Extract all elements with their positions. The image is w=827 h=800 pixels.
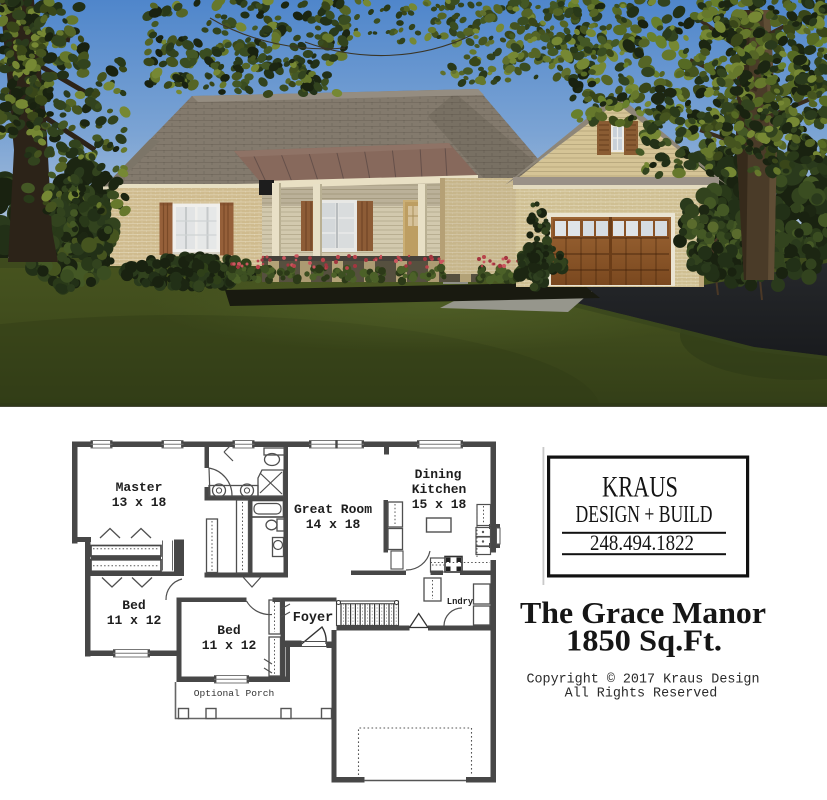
svg-text:Optional Porch: Optional Porch <box>194 688 275 699</box>
svg-text:Bed: Bed <box>122 598 145 613</box>
svg-text:All Rights Reserved: All Rights Reserved <box>565 687 718 702</box>
svg-text:14 x 18: 14 x 18 <box>306 517 361 532</box>
svg-text:Master: Master <box>116 480 163 495</box>
svg-text:Dining: Dining <box>415 467 462 482</box>
svg-text:Bed: Bed <box>217 623 240 638</box>
svg-text:13 x 18: 13 x 18 <box>112 495 167 510</box>
svg-text:Great Room: Great Room <box>294 502 372 517</box>
svg-text:KRAUS: KRAUS <box>602 471 678 504</box>
svg-text:11 x 12: 11 x 12 <box>202 638 257 653</box>
svg-text:11 x 12: 11 x 12 <box>107 613 162 628</box>
svg-text:15 x 18: 15 x 18 <box>412 497 467 512</box>
svg-text:Lndry: Lndry <box>447 597 474 607</box>
svg-text:Kitchen: Kitchen <box>412 482 467 497</box>
svg-text:Copyright © 2017 Kraus Design: Copyright © 2017 Kraus Design <box>526 673 759 688</box>
svg-text:DESIGN + BUILD: DESIGN + BUILD <box>576 502 713 528</box>
svg-text:1850 Sq.Ft.: 1850 Sq.Ft. <box>566 623 722 658</box>
svg-text:Foyer: Foyer <box>293 611 334 626</box>
svg-text:248.494.1822: 248.494.1822 <box>590 530 694 555</box>
